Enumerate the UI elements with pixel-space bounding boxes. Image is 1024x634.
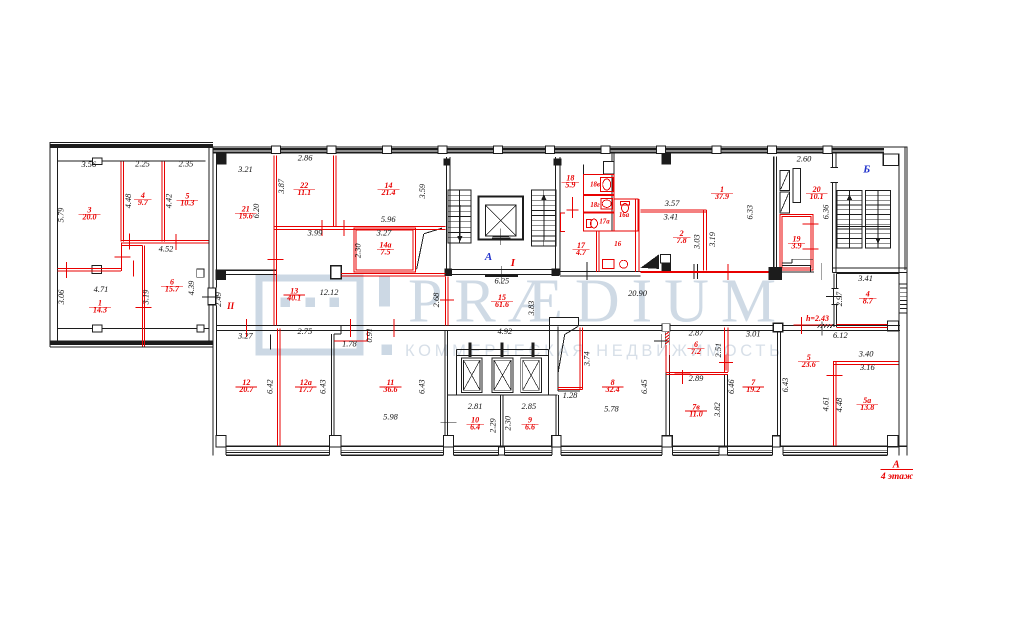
svg-text:h=2.43: h=2.43 xyxy=(806,314,829,323)
svg-text:4.39: 4.39 xyxy=(187,280,196,295)
svg-text:4.42: 4.42 xyxy=(165,194,174,209)
svg-text:8.7: 8.7 xyxy=(863,297,874,306)
svg-text:3.27: 3.27 xyxy=(237,332,253,341)
svg-text:4.61: 4.61 xyxy=(822,397,831,412)
svg-text:6.46: 6.46 xyxy=(727,379,736,394)
svg-text:Б: Б xyxy=(862,164,870,176)
svg-text:4.52: 4.52 xyxy=(159,245,174,254)
svg-text:3.9: 3.9 xyxy=(791,242,802,251)
svg-text:2.86: 2.86 xyxy=(298,154,313,163)
svg-text:16: 16 xyxy=(614,241,621,248)
svg-text:18г: 18г xyxy=(590,202,600,209)
svg-text:7.2: 7.2 xyxy=(691,347,701,356)
svg-text:16а: 16а xyxy=(619,212,630,219)
svg-text:3.87: 3.87 xyxy=(277,178,286,194)
svg-text:3.27: 3.27 xyxy=(376,229,392,238)
svg-text:13.8: 13.8 xyxy=(860,403,874,412)
svg-text:2.30: 2.30 xyxy=(354,243,363,258)
svg-text:2.87: 2.87 xyxy=(689,328,704,337)
svg-text:2.89: 2.89 xyxy=(689,374,704,383)
svg-text:4.71: 4.71 xyxy=(94,285,109,294)
svg-text:3.03: 3.03 xyxy=(693,234,702,250)
svg-text:18в: 18в xyxy=(590,182,600,189)
svg-text:4.7: 4.7 xyxy=(575,248,587,257)
svg-text:10.3: 10.3 xyxy=(180,199,194,208)
svg-text:6.4: 6.4 xyxy=(470,423,480,432)
svg-text:61.6: 61.6 xyxy=(495,300,509,309)
svg-text:6.43: 6.43 xyxy=(318,379,327,394)
svg-text:40.1: 40.1 xyxy=(286,293,301,302)
svg-text:19.2: 19.2 xyxy=(746,385,760,394)
svg-text:23.6: 23.6 xyxy=(801,360,816,369)
svg-text:5.79: 5.79 xyxy=(56,207,65,222)
svg-text:17а: 17а xyxy=(599,219,610,226)
svg-text:4.48: 4.48 xyxy=(124,193,133,208)
svg-text:7.5: 7.5 xyxy=(381,248,391,257)
svg-text:2.97: 2.97 xyxy=(835,291,844,306)
svg-text:3.59: 3.59 xyxy=(418,183,427,199)
svg-text:2.30: 2.30 xyxy=(504,415,513,430)
svg-text:3.19: 3.19 xyxy=(708,231,717,247)
svg-text:3.06: 3.06 xyxy=(57,289,66,305)
svg-text:3.21: 3.21 xyxy=(237,165,253,174)
svg-text:1.28: 1.28 xyxy=(563,391,578,400)
svg-text:2.29: 2.29 xyxy=(489,417,498,432)
svg-text:2.25: 2.25 xyxy=(135,159,150,168)
svg-text:9.7: 9.7 xyxy=(138,198,149,207)
svg-text:20.0: 20.0 xyxy=(82,213,97,222)
svg-text:4.92: 4.92 xyxy=(497,327,512,336)
svg-text:4 этаж: 4 этаж xyxy=(880,472,913,482)
svg-text:36.6: 36.6 xyxy=(383,385,398,394)
svg-text:3.41: 3.41 xyxy=(663,213,679,222)
svg-text:6.43: 6.43 xyxy=(781,378,790,393)
svg-text:20.90: 20.90 xyxy=(628,289,648,298)
svg-text:2.81: 2.81 xyxy=(468,402,483,411)
svg-text:3.56: 3.56 xyxy=(80,160,96,169)
svg-text:21.4: 21.4 xyxy=(381,188,396,197)
svg-text:6.36: 6.36 xyxy=(822,204,831,219)
svg-text:5.9: 5.9 xyxy=(565,181,575,190)
svg-text:А: А xyxy=(484,251,492,263)
svg-text:А: А xyxy=(892,460,900,471)
svg-text:3.01: 3.01 xyxy=(745,329,761,338)
svg-text:2.35: 2.35 xyxy=(179,159,194,168)
svg-text:II: II xyxy=(226,301,235,311)
svg-text:6.25: 6.25 xyxy=(494,277,509,286)
svg-text:4.48: 4.48 xyxy=(835,397,844,412)
svg-text:3.40: 3.40 xyxy=(858,350,874,359)
svg-text:32.4: 32.4 xyxy=(605,385,620,394)
svg-text:6.42: 6.42 xyxy=(266,379,275,394)
svg-text:37.9: 37.9 xyxy=(714,192,729,201)
svg-text:5.98: 5.98 xyxy=(383,412,398,421)
svg-text:14.3: 14.3 xyxy=(93,306,107,315)
svg-text:2.60: 2.60 xyxy=(797,155,812,164)
svg-text:5.96: 5.96 xyxy=(381,215,396,224)
svg-text:12.12: 12.12 xyxy=(320,288,339,297)
svg-text:6.43: 6.43 xyxy=(418,379,427,394)
svg-text:3.16: 3.16 xyxy=(859,363,875,372)
svg-text:19.6: 19.6 xyxy=(239,212,253,221)
svg-text:11.1: 11.1 xyxy=(298,188,312,197)
svg-text:6.45: 6.45 xyxy=(640,379,649,394)
svg-text:3.19: 3.19 xyxy=(142,289,151,305)
svg-text:3.41: 3.41 xyxy=(857,274,873,283)
svg-text:3.99: 3.99 xyxy=(307,229,323,238)
svg-text:2.68: 2.68 xyxy=(432,292,441,307)
svg-text:6.33: 6.33 xyxy=(746,205,755,220)
svg-text:7.8: 7.8 xyxy=(677,236,687,245)
svg-text:20.7: 20.7 xyxy=(238,385,254,394)
svg-text:6.12: 6.12 xyxy=(833,331,848,340)
svg-text:11.0: 11.0 xyxy=(689,409,703,418)
svg-text:3.74: 3.74 xyxy=(582,351,591,367)
svg-text:15.7: 15.7 xyxy=(165,285,180,294)
svg-text:3.82: 3.82 xyxy=(713,402,722,418)
svg-text:0.91: 0.91 xyxy=(365,328,374,343)
svg-text:I: I xyxy=(510,257,516,269)
svg-text:2.49: 2.49 xyxy=(214,291,223,306)
svg-text:17.7: 17.7 xyxy=(299,385,314,394)
svg-text:2.75: 2.75 xyxy=(297,327,312,336)
svg-text:5.78: 5.78 xyxy=(604,404,619,413)
svg-text:6.20: 6.20 xyxy=(252,203,261,218)
svg-text:10.1: 10.1 xyxy=(810,192,824,201)
svg-text:1.78: 1.78 xyxy=(342,340,357,349)
svg-text:3.57: 3.57 xyxy=(664,199,680,208)
svg-text:3.83: 3.83 xyxy=(527,301,536,317)
svg-text:2.85: 2.85 xyxy=(521,402,536,411)
svg-text:6.6: 6.6 xyxy=(525,423,535,432)
svg-text:2.51: 2.51 xyxy=(714,343,723,358)
